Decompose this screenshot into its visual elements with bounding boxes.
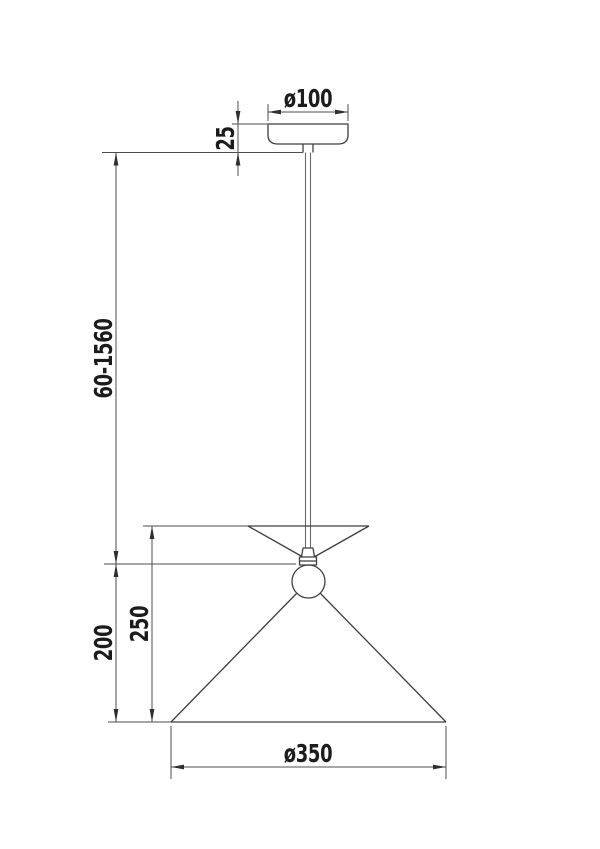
bulb-sphere bbox=[292, 565, 325, 598]
socket-collar bbox=[300, 557, 317, 565]
canopy-neck bbox=[303, 144, 313, 153]
suspension-rod bbox=[306, 153, 311, 549]
arrow-up-icon bbox=[236, 153, 241, 166]
canopy-height-label: 25 bbox=[212, 126, 241, 150]
arrow-up-icon bbox=[114, 564, 119, 577]
arrow-down-icon bbox=[236, 111, 241, 124]
canopy-diameter-label: ø100 bbox=[284, 85, 333, 114]
suspension-length-label: 60-1560 bbox=[90, 318, 119, 398]
ceiling-canopy bbox=[268, 124, 348, 144]
arrow-left-icon bbox=[268, 110, 281, 115]
arrow-left-icon bbox=[171, 765, 184, 770]
lamp-socket bbox=[302, 548, 315, 557]
shade-total-height-label: 250 bbox=[126, 606, 155, 643]
fixture-outline bbox=[171, 124, 446, 722]
arrow-down-icon bbox=[150, 709, 155, 722]
arrow-right-icon bbox=[433, 765, 446, 770]
upper-shade-cone bbox=[248, 526, 369, 557]
arrow-up-icon bbox=[114, 153, 119, 166]
lower-shade-cone bbox=[171, 594, 446, 723]
arrow-up-icon bbox=[150, 526, 155, 539]
arrow-down-icon bbox=[114, 551, 119, 564]
drawing-canvas: ø100 25 60-1560 250 200 ø350 bbox=[0, 0, 600, 849]
shade-diameter-label: ø350 bbox=[284, 740, 333, 769]
dimension-labels: ø100 25 60-1560 250 200 ø350 bbox=[90, 85, 332, 769]
lower-section-height-label: 200 bbox=[90, 625, 119, 662]
technical-drawing: ø100 25 60-1560 250 200 ø350 bbox=[0, 0, 600, 849]
dimension-lines bbox=[102, 101, 446, 779]
arrow-right-icon bbox=[335, 110, 348, 115]
arrow-down-icon bbox=[114, 709, 119, 722]
